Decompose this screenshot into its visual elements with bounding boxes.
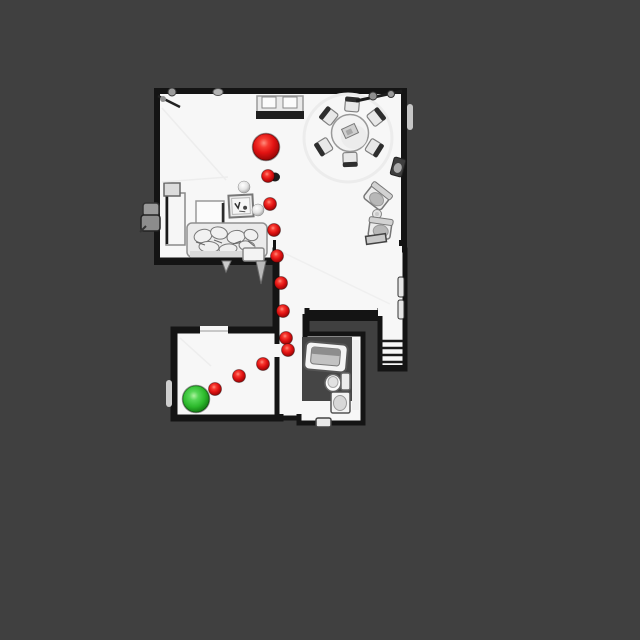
path-waypoint-sphere <box>257 358 270 371</box>
dining-chair-4 <box>342 152 357 167</box>
bathroom-east-counter <box>352 340 359 410</box>
bench-top <box>366 234 387 245</box>
path-waypoint-sphere <box>271 250 284 263</box>
path-waypoint-sphere <box>209 383 222 396</box>
toilet-tank <box>341 373 350 390</box>
coffee-side-table <box>243 248 264 261</box>
path-waypoint-sphere <box>277 305 290 318</box>
left-wall-frame <box>164 183 180 196</box>
chair-back <box>343 162 358 168</box>
hallway-bench <box>366 234 387 245</box>
bathtub <box>304 341 348 373</box>
stairs-door-bar-1 <box>398 277 404 297</box>
sideboard-drawer-1 <box>262 97 276 108</box>
stairs-door-bar-2 <box>398 300 404 319</box>
seam-corridor <box>276 240 304 414</box>
sideboard-drawer-2 <box>283 97 297 108</box>
path-waypoint-sphere <box>233 370 246 383</box>
path-waypoint-sphere <box>262 170 275 183</box>
path-waypoint-sphere <box>280 332 293 345</box>
path-waypoint-sphere <box>268 224 281 237</box>
toilet-seat <box>328 377 338 388</box>
door-marker-entry-left <box>166 380 172 407</box>
door-marker-topright <box>407 104 413 130</box>
static-geometry-layer <box>0 0 640 640</box>
sink-basin <box>334 396 347 411</box>
scene-viewport[interactable] <box>0 0 640 640</box>
picture-inner <box>232 198 251 215</box>
path-waypoint-sphere <box>275 277 288 290</box>
goal-sphere-red <box>253 134 280 161</box>
wall-object-blob-1 <box>168 88 176 96</box>
wall-object-blob-3 <box>369 92 377 100</box>
start-sphere-green <box>183 386 210 413</box>
wall-object-blob-2 <box>213 89 223 96</box>
path-waypoint-sphere <box>264 198 277 211</box>
exterior-unit-1 <box>143 203 159 216</box>
decor-sphere <box>238 181 250 193</box>
dining-chair-1 <box>344 96 360 112</box>
decor-sphere <box>252 204 264 216</box>
picture-shelf <box>228 194 253 217</box>
floorplan-topdown-view <box>0 0 640 640</box>
left-cabinet <box>166 193 185 245</box>
wall-object-blob-5 <box>160 96 166 102</box>
wall-object-blob-4 <box>388 91 395 98</box>
bathroom-door-bar <box>316 418 331 427</box>
sideboard-front <box>256 111 304 119</box>
side-table-round-center <box>375 212 379 216</box>
path-waypoint-sphere <box>282 344 295 357</box>
